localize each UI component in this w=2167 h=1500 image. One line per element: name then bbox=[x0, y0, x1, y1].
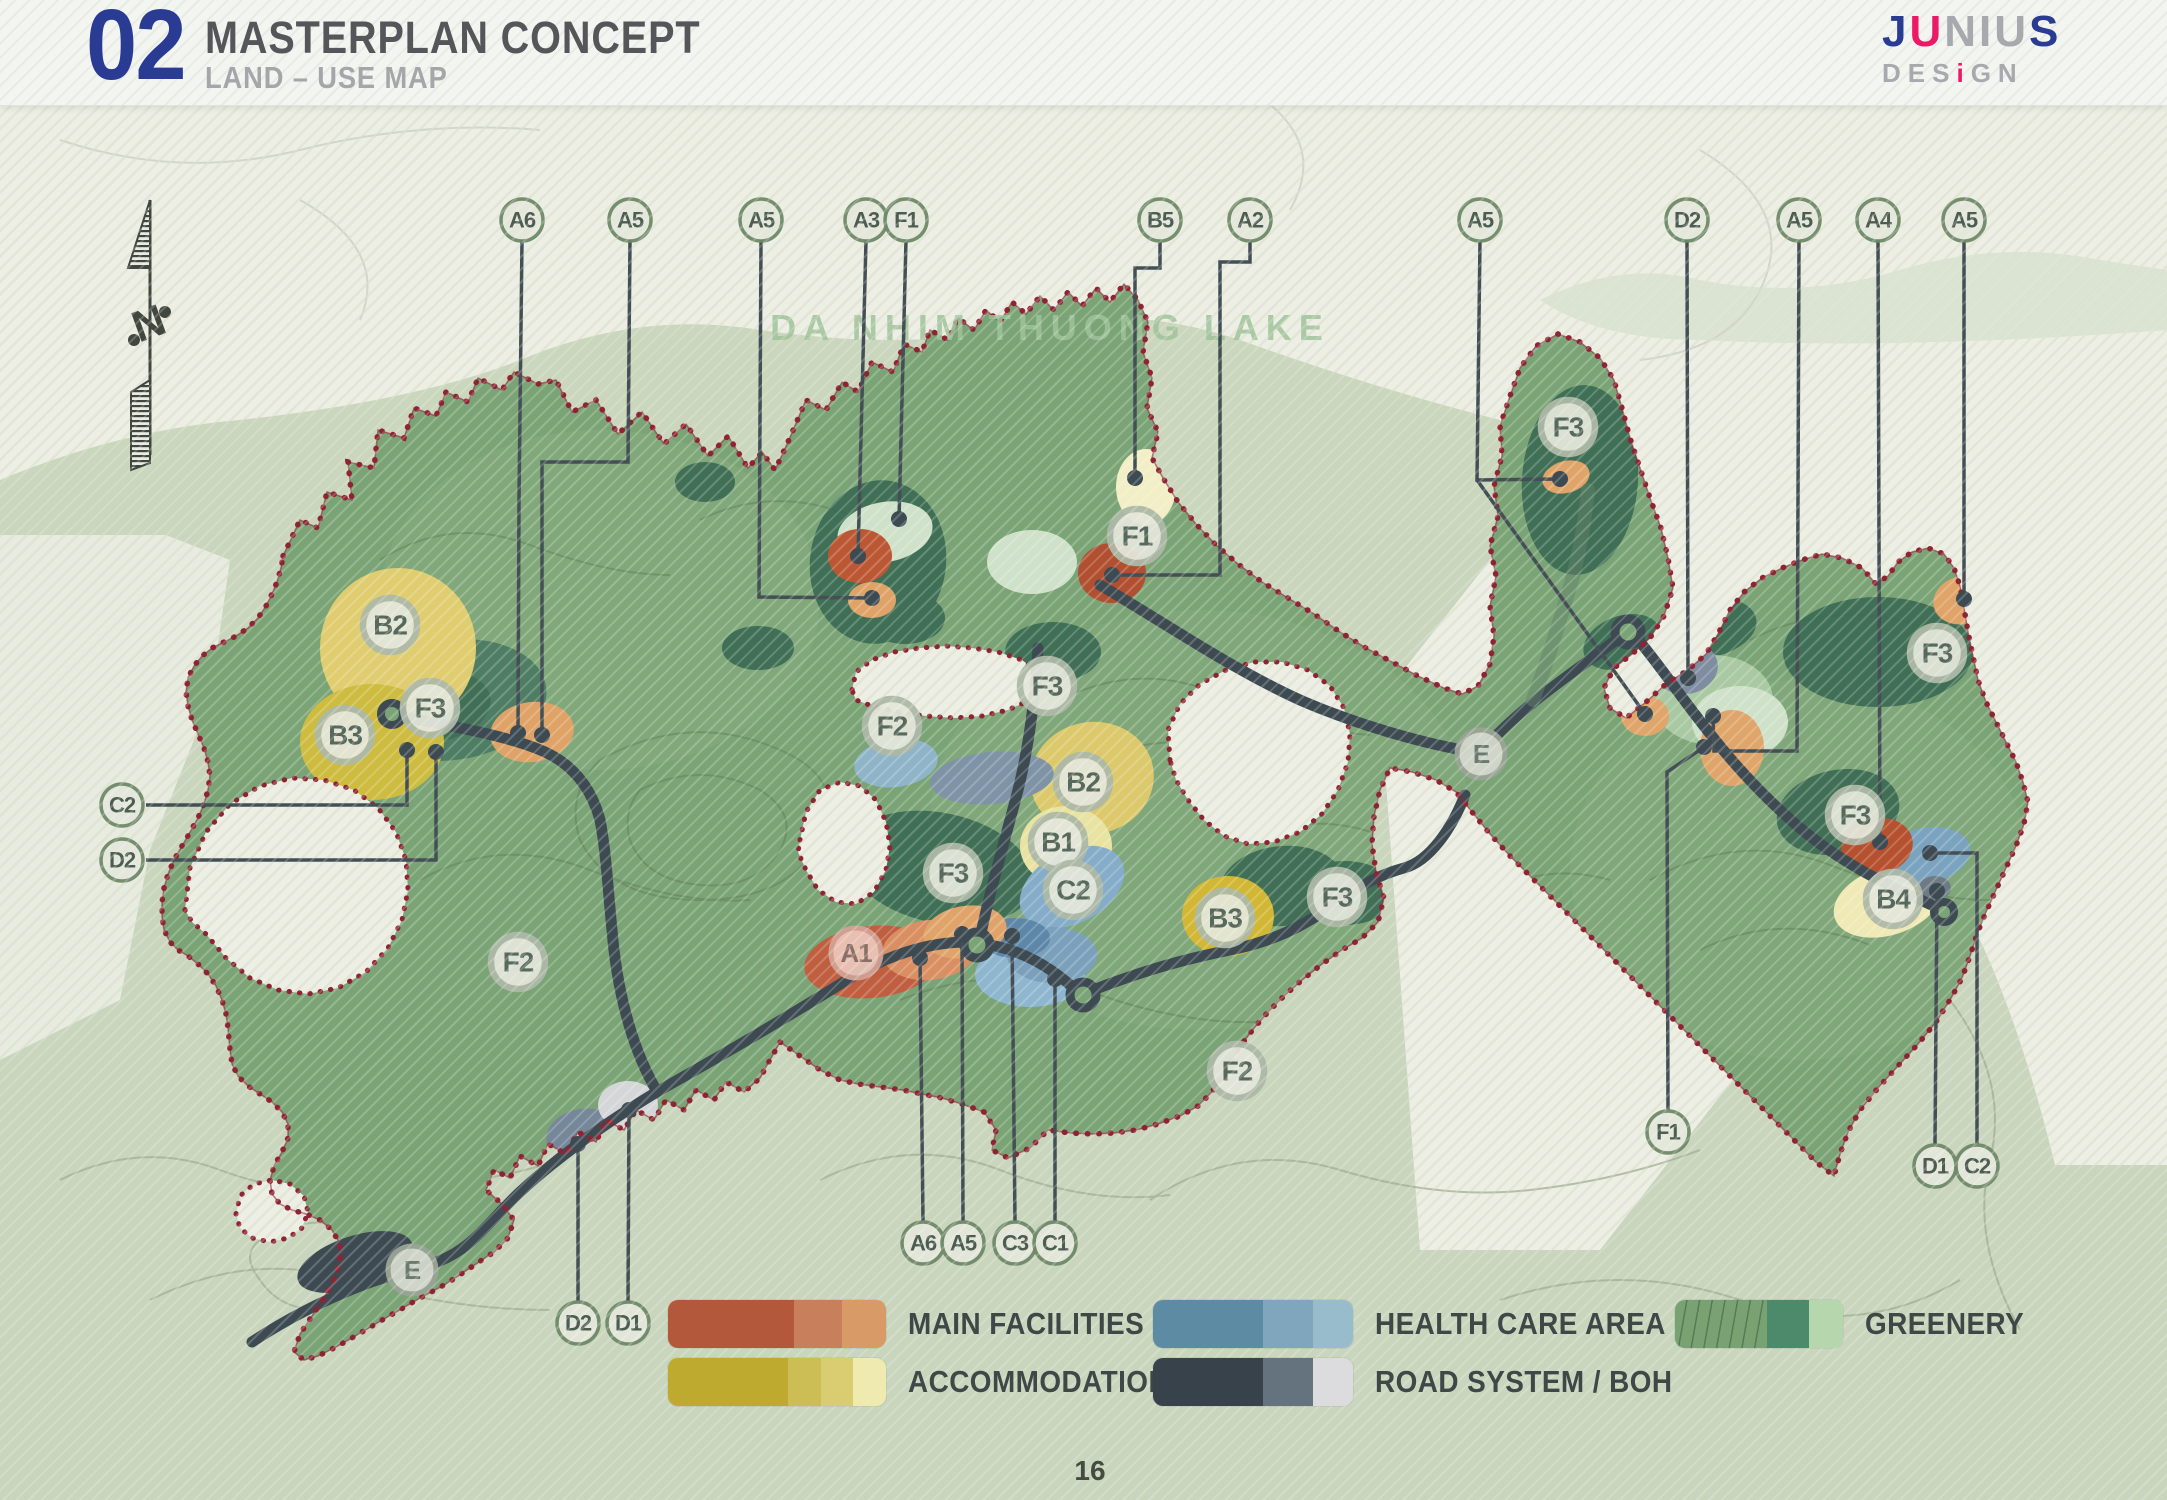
map-marker-A1: A1 bbox=[831, 928, 881, 978]
legend-color-cell bbox=[1313, 1358, 1353, 1406]
section-number: 02 bbox=[86, 0, 185, 103]
legend-color-cell bbox=[794, 1300, 842, 1348]
map-marker-B5: B5 bbox=[1139, 199, 1181, 241]
map-marker-A6: A6 bbox=[501, 199, 543, 241]
marker-label: F1 bbox=[1122, 521, 1153, 552]
leader-line bbox=[1878, 240, 1880, 842]
marker-label: A5 bbox=[1467, 208, 1494, 233]
marker-label: A5 bbox=[748, 208, 775, 233]
masterplan-slide: DA NHIM THUONG LAKE N B2B3F3F2F2F3F1B2B1… bbox=[0, 0, 2167, 1500]
legend-color-cell bbox=[668, 1358, 788, 1406]
map-marker-A5: A5 bbox=[1459, 199, 1501, 241]
map-marker-E: E bbox=[388, 1246, 436, 1294]
legend-greenery: GREENERY bbox=[1675, 1300, 2042, 1348]
map-marker-A5: A5 bbox=[1943, 199, 1985, 241]
map-marker-D2: D2 bbox=[1666, 199, 1708, 241]
header: 02 MASTERPLAN CONCEPT LAND – USE MAP bbox=[0, 0, 2167, 106]
map-marker-F2: F2 bbox=[491, 935, 545, 989]
marker-label: B3 bbox=[328, 720, 362, 751]
leader-line bbox=[962, 934, 963, 1221]
leader-dot bbox=[1004, 928, 1020, 944]
marker-label: B3 bbox=[1208, 903, 1242, 934]
leader-line bbox=[628, 1110, 629, 1301]
leader-dot bbox=[1922, 845, 1938, 861]
marker-label: F3 bbox=[1032, 671, 1063, 702]
marker-label: F3 bbox=[1922, 638, 1953, 669]
map-marker-D2: D2 bbox=[557, 1302, 599, 1344]
map-marker-D1: D1 bbox=[1914, 1145, 1956, 1187]
leader-dot bbox=[1696, 739, 1712, 755]
map-marker-F3: F3 bbox=[1310, 870, 1364, 924]
marker-label: A5 bbox=[1786, 208, 1813, 233]
marker-label: A4 bbox=[1865, 208, 1893, 233]
map-marker-C3: C3 bbox=[994, 1222, 1036, 1264]
map-marker-F3: F3 bbox=[926, 846, 980, 900]
leader-dot bbox=[1047, 971, 1063, 987]
leader-dot bbox=[510, 725, 526, 741]
map-marker-F2: F2 bbox=[1210, 1044, 1264, 1098]
legend-road-system: ROAD SYSTEM / BOH bbox=[1153, 1358, 1706, 1406]
leader-dot bbox=[1680, 670, 1696, 686]
leader-dot bbox=[1929, 883, 1945, 899]
marker-label: A5 bbox=[1951, 208, 1978, 233]
leader-dot bbox=[1956, 591, 1972, 607]
map-marker-A4: A4 bbox=[1857, 199, 1899, 241]
marker-label: F2 bbox=[1222, 1056, 1253, 1087]
map-marker-E: E bbox=[1457, 730, 1505, 778]
legend-color-cell bbox=[788, 1358, 821, 1406]
legend-swatch-accommodation bbox=[668, 1358, 886, 1406]
legend-color-cell bbox=[1153, 1358, 1263, 1406]
map-marker-A5: A5 bbox=[609, 199, 651, 241]
legend-swatch-greenery bbox=[1675, 1300, 1843, 1348]
marker-label: F2 bbox=[877, 711, 908, 742]
marker-label: A6 bbox=[509, 208, 536, 233]
marker-label: B1 bbox=[1041, 827, 1075, 858]
legend-color-cell bbox=[821, 1358, 854, 1406]
marker-label: C2 bbox=[1964, 1154, 1991, 1179]
lake-label: DA NHIM THUONG LAKE bbox=[770, 307, 1330, 348]
marker-label: F1 bbox=[1656, 1120, 1680, 1145]
legend-color-cell bbox=[1767, 1300, 1809, 1348]
map-marker-A6: A6 bbox=[902, 1222, 944, 1264]
marker-label: F1 bbox=[894, 208, 918, 233]
map-marker-A5: A5 bbox=[942, 1222, 984, 1264]
map-marker-F1: F1 bbox=[885, 199, 927, 241]
logo-line1: JUNIUS bbox=[1882, 10, 2061, 54]
leader-dot bbox=[1127, 470, 1143, 486]
leader-dot bbox=[891, 511, 907, 527]
legend-color-cell bbox=[1263, 1300, 1313, 1348]
marker-label: E bbox=[1473, 739, 1490, 769]
map-marker-B2: B2 bbox=[363, 598, 417, 652]
marker-label: D2 bbox=[1674, 208, 1701, 233]
leader-line bbox=[1935, 891, 1937, 1144]
leader-dot bbox=[399, 742, 415, 758]
marker-label: B4 bbox=[1876, 884, 1911, 915]
legend-color-cell bbox=[842, 1300, 886, 1348]
marker-label: C3 bbox=[1002, 1231, 1029, 1256]
map-marker-F3: F3 bbox=[1020, 659, 1074, 713]
marker-label: D2 bbox=[565, 1311, 592, 1336]
leader-dot bbox=[954, 926, 970, 942]
map-marker-D2: D2 bbox=[101, 839, 143, 881]
legend-color-cell bbox=[853, 1358, 886, 1406]
legend-color-cell bbox=[668, 1300, 794, 1348]
map-marker-F2: F2 bbox=[865, 699, 919, 753]
page-subtitle: LAND – USE MAP bbox=[205, 60, 448, 96]
marker-label: B5 bbox=[1147, 208, 1174, 233]
marker-label: B2 bbox=[1066, 767, 1100, 798]
legend-color-cell bbox=[1313, 1300, 1353, 1348]
marker-label: F3 bbox=[1840, 800, 1871, 831]
legend-color-cell bbox=[1809, 1300, 1843, 1348]
marker-label: F3 bbox=[1322, 882, 1353, 913]
legend-label: GREENERY bbox=[1865, 1306, 2024, 1342]
leader-dot bbox=[621, 1102, 637, 1118]
map-marker-B2: B2 bbox=[1056, 755, 1110, 809]
map-marker-F3: F3 bbox=[1541, 400, 1595, 454]
marker-label: A6 bbox=[910, 1231, 937, 1256]
map-marker-B4: B4 bbox=[1866, 872, 1920, 926]
map-marker-A5: A5 bbox=[740, 199, 782, 241]
leader-dot bbox=[1705, 708, 1721, 724]
leader-dot bbox=[1104, 567, 1120, 583]
legend-color-cell bbox=[1263, 1358, 1313, 1406]
marker-label: C1 bbox=[1042, 1231, 1069, 1256]
marker-label: E bbox=[404, 1255, 421, 1285]
leader-dot bbox=[428, 744, 444, 760]
leader-dot bbox=[1637, 706, 1653, 722]
marker-label: D2 bbox=[109, 848, 136, 873]
map-marker-F1: F1 bbox=[1110, 509, 1164, 563]
page-number: 16 bbox=[1060, 1455, 1120, 1487]
marker-label: D1 bbox=[1922, 1154, 1949, 1179]
legend-main-facilities: MAIN FACILITIES bbox=[668, 1300, 1170, 1348]
leader-dot bbox=[850, 548, 866, 564]
masterplan-map: DA NHIM THUONG LAKE N B2B3F3F2F2F3F1B2B1… bbox=[0, 0, 2167, 1500]
marker-label: F3 bbox=[1553, 412, 1584, 443]
map-marker-B3: B3 bbox=[1198, 891, 1252, 945]
map-marker-D1: D1 bbox=[607, 1302, 649, 1344]
leader-dot bbox=[912, 950, 928, 966]
marker-label: C2 bbox=[1056, 875, 1090, 906]
marker-label: F3 bbox=[938, 858, 969, 889]
legend-swatch-road-system bbox=[1153, 1358, 1353, 1406]
leader-dot bbox=[570, 1136, 586, 1152]
marker-label: B2 bbox=[373, 610, 407, 641]
marker-label: A2 bbox=[1237, 208, 1264, 233]
marker-label: A5 bbox=[950, 1231, 977, 1256]
leader-dot bbox=[534, 727, 550, 743]
map-marker-F3: F3 bbox=[403, 681, 457, 735]
marker-label: A3 bbox=[853, 208, 880, 233]
legend-health-care: HEALTH CARE AREA bbox=[1153, 1300, 1698, 1348]
legend-color-cell bbox=[1153, 1300, 1263, 1348]
marker-label: A5 bbox=[617, 208, 644, 233]
logo-line2: DESiGN bbox=[1882, 60, 2061, 86]
map-marker-F3: F3 bbox=[1828, 788, 1882, 842]
legend-accommodation: ACCOMMODATION bbox=[668, 1358, 1198, 1406]
leader-line bbox=[1687, 240, 1688, 678]
legend-swatch-main-facilities bbox=[668, 1300, 886, 1348]
marker-label: A1 bbox=[840, 938, 872, 968]
marker-label: F3 bbox=[415, 693, 446, 724]
map-marker-A3: A3 bbox=[845, 199, 887, 241]
map-marker-A5: A5 bbox=[1778, 199, 1820, 241]
page-title: MASTERPLAN CONCEPT bbox=[205, 12, 700, 64]
map-marker-C2: C2 bbox=[1956, 1145, 1998, 1187]
legend-label: MAIN FACILITIES bbox=[908, 1306, 1144, 1342]
leader-dot bbox=[864, 590, 880, 606]
map-marker-A2: A2 bbox=[1229, 199, 1271, 241]
map-marker-B3: B3 bbox=[318, 708, 372, 762]
marker-label: C2 bbox=[109, 793, 136, 818]
marker-label: F2 bbox=[503, 947, 534, 978]
map-marker-F1: F1 bbox=[1647, 1111, 1689, 1153]
junius-design-logo: JUNIUS DESiGN bbox=[1882, 10, 2061, 86]
legend-label: HEALTH CARE AREA bbox=[1375, 1306, 1666, 1342]
legend-label: ACCOMMODATION bbox=[908, 1364, 1169, 1400]
marker-label: D1 bbox=[615, 1311, 642, 1336]
map-marker-C2: C2 bbox=[101, 784, 143, 826]
map-marker-F3: F3 bbox=[1910, 626, 1964, 680]
leader-dot bbox=[1552, 471, 1568, 487]
legend-swatch-health-care bbox=[1153, 1300, 1353, 1348]
legend-color-cell bbox=[1675, 1300, 1767, 1348]
map-marker-C1: C1 bbox=[1034, 1222, 1076, 1264]
map-marker-C2: C2 bbox=[1046, 863, 1100, 917]
legend-label: ROAD SYSTEM / BOH bbox=[1375, 1364, 1673, 1400]
